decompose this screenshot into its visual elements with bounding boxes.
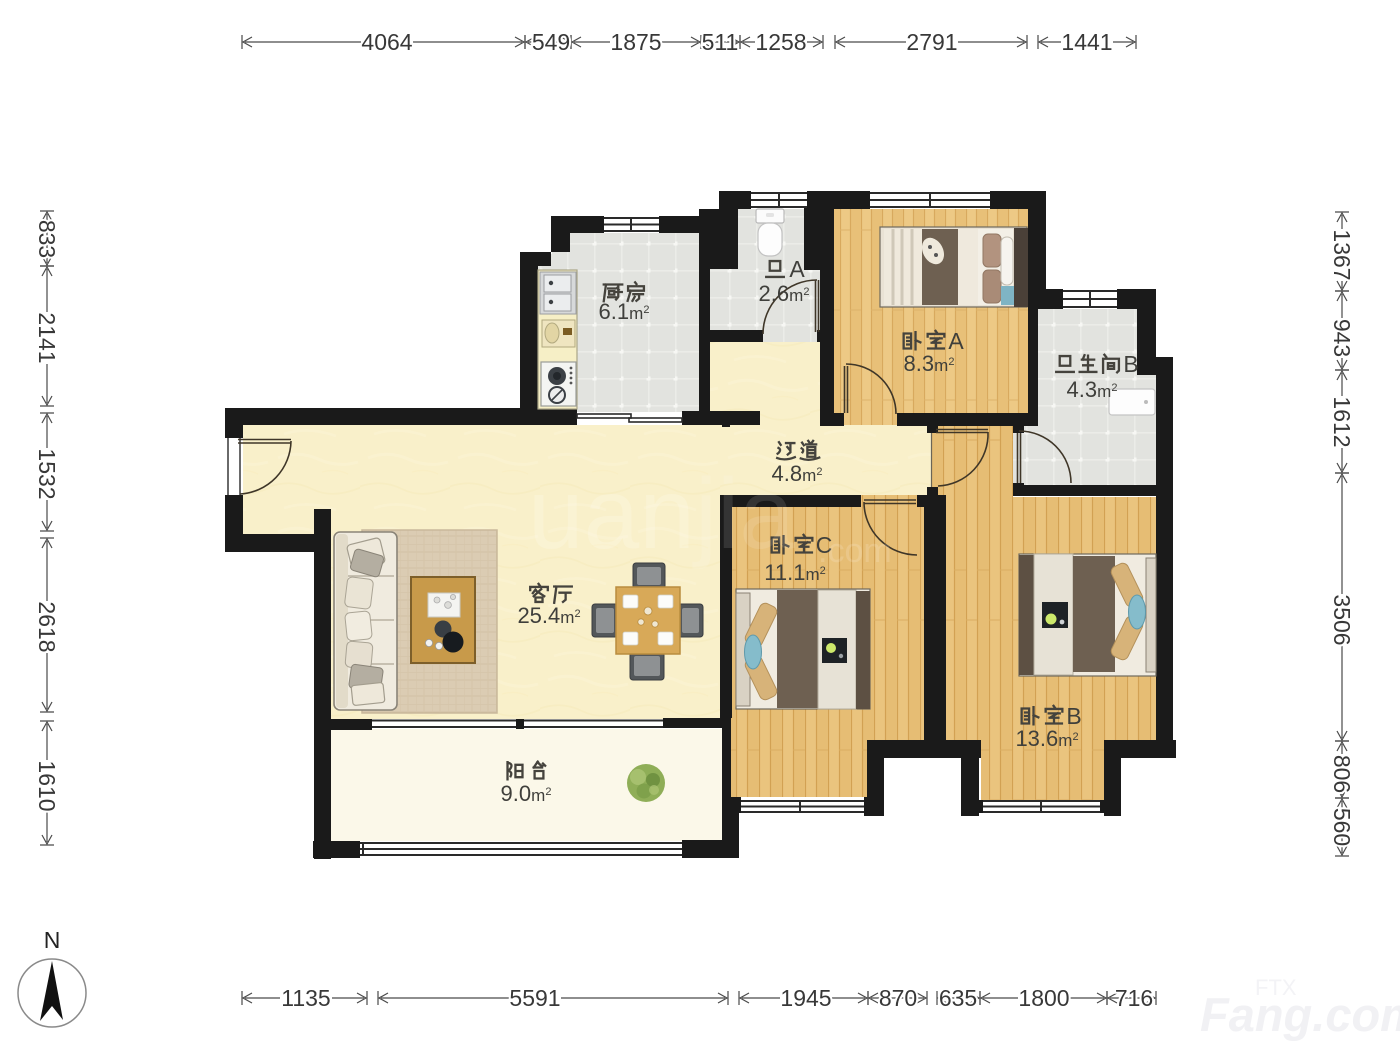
svg-text:Fang.com: Fang.com (1200, 988, 1400, 1041)
svg-text:.com: .com (818, 532, 892, 570)
svg-text:1135: 1135 (281, 985, 330, 1011)
svg-text:2618: 2618 (34, 601, 60, 652)
svg-text:4064: 4064 (361, 29, 412, 55)
svg-text:870: 870 (879, 985, 917, 1011)
svg-text:1367: 1367 (1329, 229, 1355, 280)
svg-text:806: 806 (1329, 755, 1355, 793)
svg-text:1875: 1875 (610, 29, 661, 55)
svg-text:1532: 1532 (34, 448, 60, 499)
svg-text:635: 635 (939, 985, 977, 1011)
svg-text:5591: 5591 (509, 985, 560, 1011)
svg-text:549: 549 (532, 29, 570, 55)
svg-text:2791: 2791 (906, 29, 957, 55)
svg-text:2141: 2141 (34, 312, 60, 363)
svg-text:833: 833 (34, 220, 60, 258)
svg-text:1945: 1945 (780, 985, 831, 1011)
svg-text:B: B (1123, 351, 1138, 377)
svg-text:A: A (948, 328, 964, 354)
svg-text:1800: 1800 (1018, 985, 1069, 1011)
svg-text:uanjia: uanjia (528, 458, 795, 570)
svg-text:N: N (44, 927, 61, 953)
svg-text:A: A (789, 256, 805, 282)
svg-text:1441: 1441 (1061, 29, 1112, 55)
svg-text:FTX: FTX (1255, 975, 1297, 1000)
svg-text:943: 943 (1329, 319, 1355, 357)
svg-text:B: B (1066, 703, 1081, 729)
svg-text:511: 511 (702, 29, 739, 55)
svg-text:1612: 1612 (1329, 396, 1355, 447)
svg-text:1610: 1610 (34, 760, 60, 811)
svg-text:1258: 1258 (755, 29, 806, 55)
svg-text:3506: 3506 (1329, 594, 1355, 645)
svg-text:560: 560 (1329, 808, 1355, 846)
svg-text:716: 716 (1115, 985, 1153, 1011)
